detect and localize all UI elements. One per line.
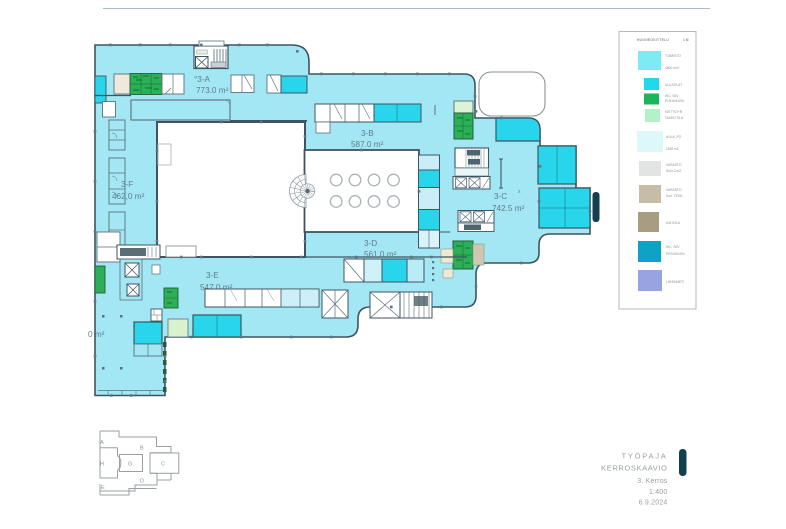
svg-text:LIIKENNETI: LIIKENNETI bbox=[666, 280, 684, 284]
svg-text:4800 m2+: 4800 m2+ bbox=[665, 66, 680, 70]
svg-text:3-E: 3-E bbox=[206, 271, 219, 280]
svg-text:TOIMISTO: TOIMISTO bbox=[665, 54, 681, 58]
svg-text:462,0 m²: 462,0 m² bbox=[112, 192, 145, 201]
svg-text:°3-A: °3-A bbox=[194, 75, 211, 84]
svg-text:AULATILAT: AULATILAT bbox=[665, 83, 682, 87]
svg-text:0 m²: 0 m² bbox=[88, 330, 105, 339]
svg-text:HUONEOSITTELU: HUONEOSITTELU bbox=[637, 38, 669, 42]
svg-text:TYÖPAJA: TYÖPAJA bbox=[622, 452, 668, 461]
svg-text:587.0 m²: 587.0 m² bbox=[351, 140, 384, 149]
svg-text:3-F: 3-F bbox=[121, 180, 133, 189]
svg-text:742.5 m²: 742.5 m² bbox=[492, 204, 525, 213]
svg-text:561,0 m²: 561,0 m² bbox=[364, 250, 397, 259]
svg-text:3-D: 3-D bbox=[364, 239, 377, 248]
svg-text:AULA, PO: AULA, PO bbox=[666, 135, 682, 139]
svg-text:1:400: 1:400 bbox=[649, 489, 668, 496]
svg-text:PUKUHUON: PUKUHUON bbox=[665, 99, 684, 103]
svg-text:PESUHUON: PESUHUON bbox=[666, 252, 685, 256]
svg-text:C: C bbox=[161, 462, 165, 468]
svg-text:KERROSKAAVIO: KERROSKAAVIO bbox=[601, 464, 667, 473]
svg-text:773.0 m²: 773.0 m² bbox=[196, 86, 229, 95]
svg-text:1 M: 1 M bbox=[683, 38, 689, 42]
svg-text:KAHVILA: KAHVILA bbox=[666, 221, 681, 225]
svg-text:D: D bbox=[140, 479, 144, 485]
svg-text:WC, SIIV: WC, SIIV bbox=[665, 94, 679, 98]
svg-text:B: B bbox=[140, 446, 144, 452]
svg-text:6.9.2024: 6.9.2024 bbox=[639, 500, 668, 507]
svg-text:3-B: 3-B bbox=[361, 129, 374, 138]
svg-text:G: G bbox=[128, 462, 132, 468]
svg-text:1198 m2: 1198 m2 bbox=[666, 147, 679, 151]
svg-text:E: E bbox=[101, 485, 105, 491]
svg-text:KEITTIÖ+R: KEITTIÖ+R bbox=[665, 110, 683, 114]
svg-text:H: H bbox=[100, 462, 104, 468]
svg-text:VARASTO: VARASTO bbox=[666, 163, 682, 167]
svg-text:TAUKOTILA: TAUKOTILA bbox=[665, 116, 684, 120]
svg-text:A: A bbox=[100, 440, 104, 446]
svg-text:3. Kerros: 3. Kerros bbox=[637, 478, 667, 485]
svg-text:WC, SIIV: WC, SIIV bbox=[666, 245, 680, 249]
svg-text:Kon. TEKN: Kon. TEKN bbox=[666, 194, 683, 198]
svg-text:Suht 2 m2: Suht 2 m2 bbox=[666, 169, 681, 173]
svg-text:3-C: 3-C bbox=[494, 192, 507, 201]
svg-text:VARASTO: VARASTO bbox=[666, 188, 682, 192]
